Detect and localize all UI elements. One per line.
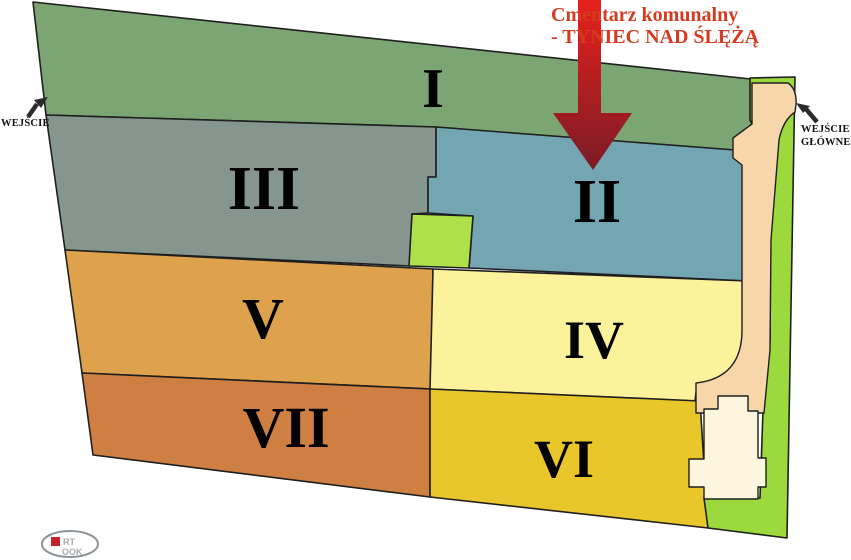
entrance-main-arrow-icon bbox=[796, 103, 817, 122]
artlook-logo: RT OOK bbox=[42, 531, 98, 557]
map-title-line1: Cmentarz komunalny bbox=[551, 4, 759, 26]
section-I-label: I bbox=[422, 61, 444, 117]
entrance-main-label: WEJŚCIE GŁÓWNE bbox=[801, 123, 851, 149]
section-V-label: V bbox=[242, 290, 284, 348]
small-green-square bbox=[409, 214, 473, 268]
section-VI-label: VI bbox=[534, 432, 594, 486]
section-IV-label: IV bbox=[564, 313, 624, 367]
section-III-label: III bbox=[228, 158, 300, 220]
logo-text-top: RT bbox=[63, 537, 75, 547]
entrance-left-label: WEJŚCIE bbox=[1, 117, 50, 130]
map-title: Cmentarz komunalny - TYNIEC NAD ŚLĘŻĄ bbox=[551, 4, 759, 48]
map-title-line2: - TYNIEC NAD ŚLĘŻĄ bbox=[551, 26, 759, 48]
cemetery-map-page: RT OOK Cmentarz komunalny - TYNIEC NAD Ś… bbox=[0, 0, 851, 560]
logo-text-bottom: OOK bbox=[62, 547, 83, 557]
entrance-main-label-line1: WEJŚCIE bbox=[801, 123, 851, 136]
section-II-label: II bbox=[573, 171, 621, 233]
section-VII-label: VII bbox=[242, 399, 329, 457]
logo-red-square bbox=[51, 537, 60, 546]
entrance-main-label-line2: GŁÓWNE bbox=[801, 136, 851, 149]
